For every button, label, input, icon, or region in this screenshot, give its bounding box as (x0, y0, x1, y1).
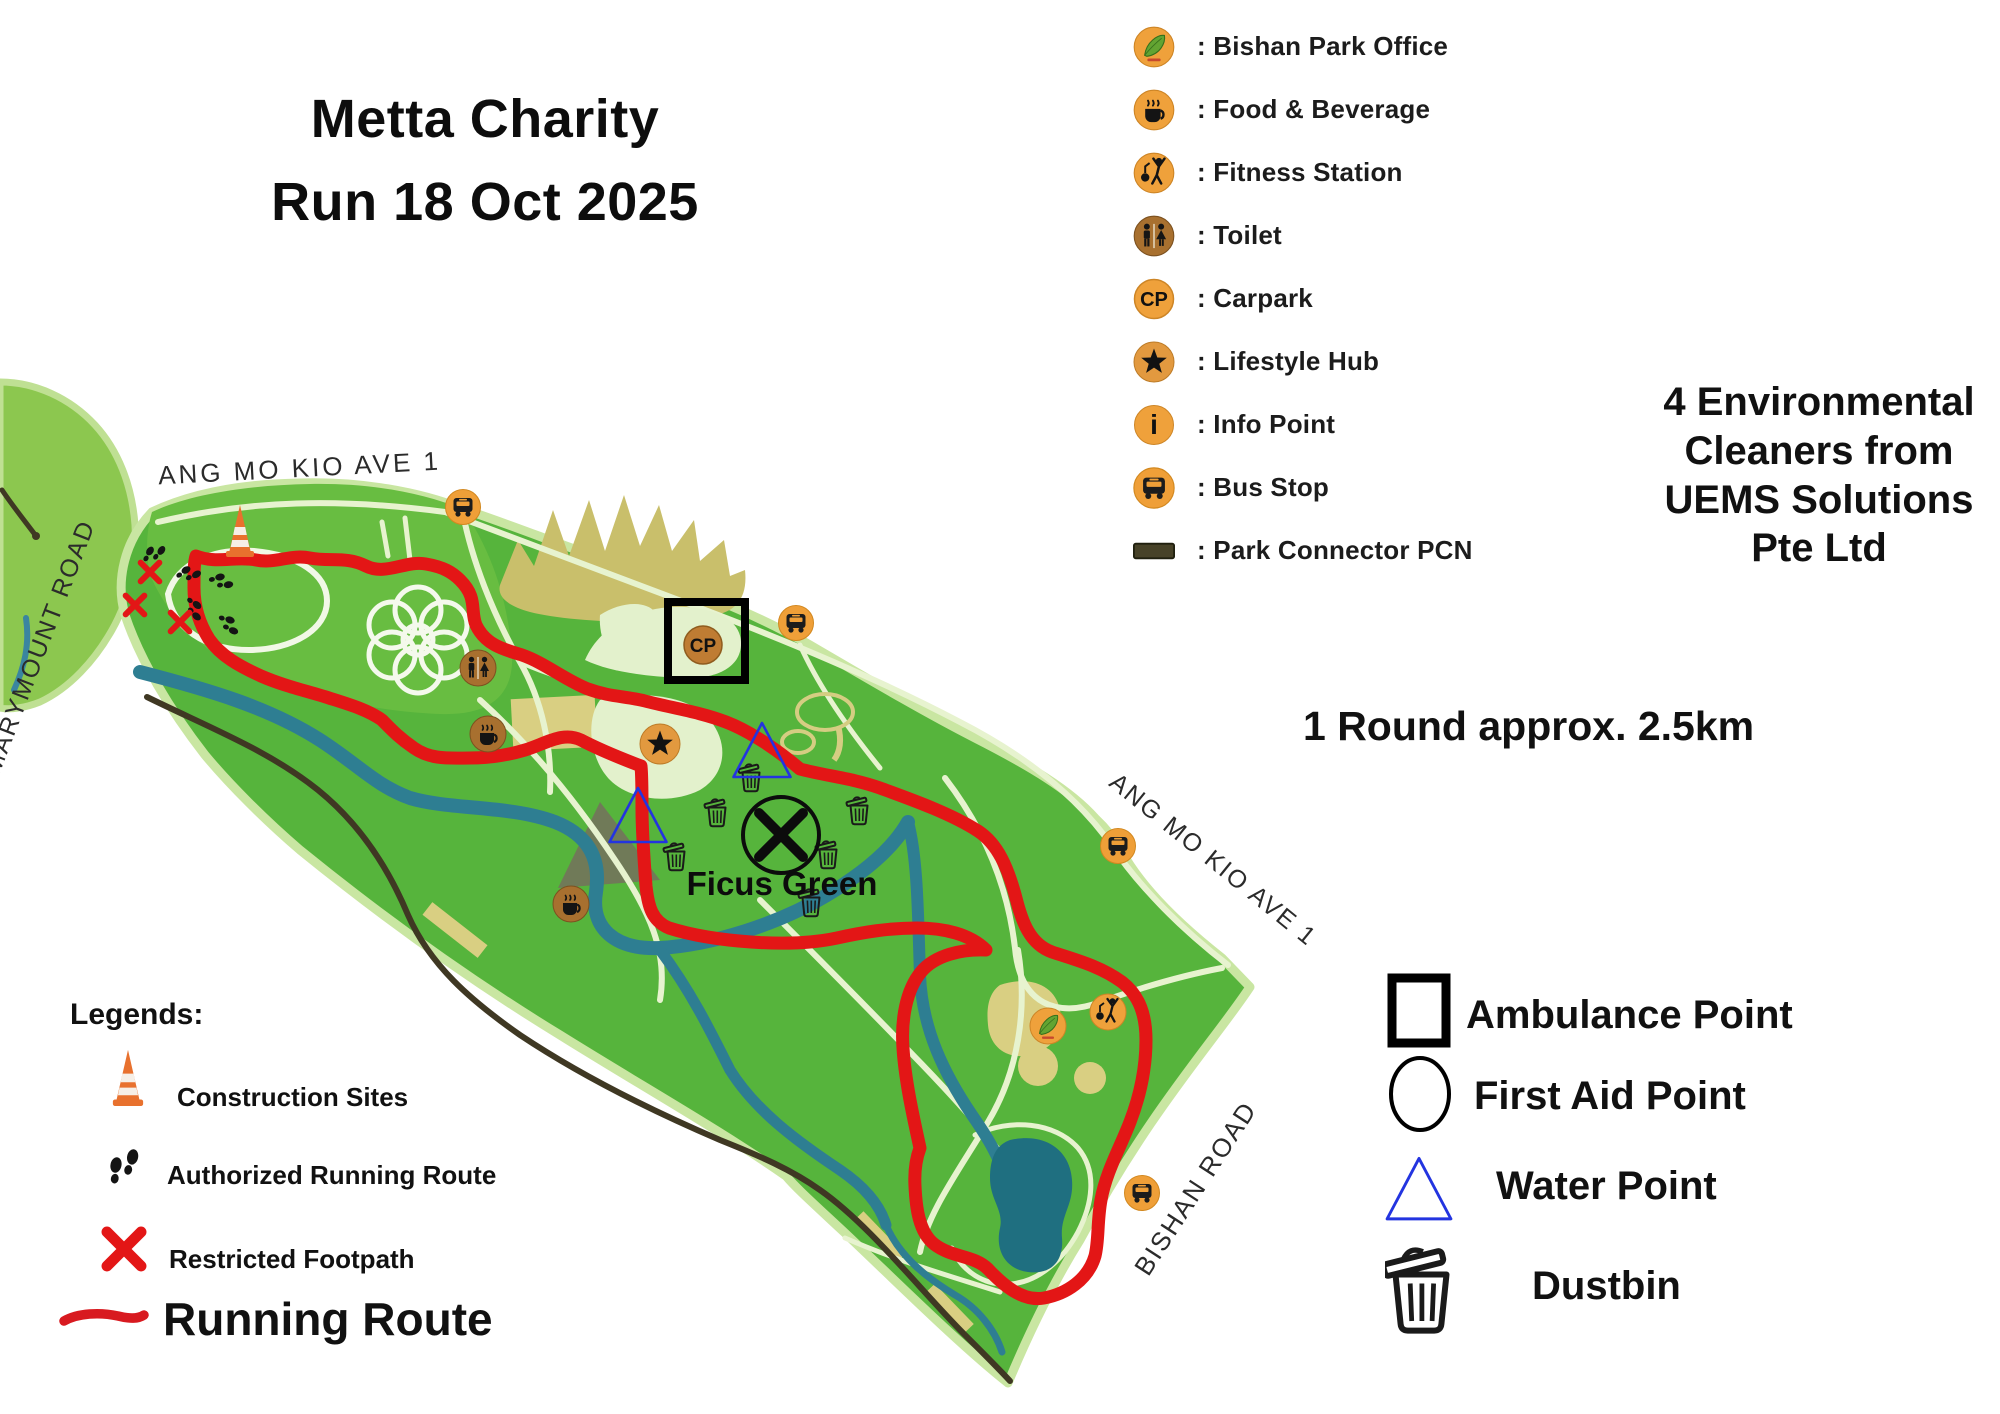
title-line1: Metta Charity (205, 78, 765, 161)
pond (990, 1138, 1072, 1272)
facilities-legend: : Bishan Park Office : Food & Beverage :… (1133, 15, 1603, 582)
legend-row-info: i : Info Point (1133, 393, 1603, 456)
bus-stop-icon (446, 490, 481, 525)
food-beverage-icon (553, 886, 589, 922)
park-office-icon (1133, 26, 1175, 68)
legend-row-fitness: : Fitness Station (1133, 141, 1603, 204)
points-legend-label: Ambulance Point (1466, 993, 1793, 1038)
legend-label: : Toilet (1197, 220, 1282, 251)
legend-row-toilet: : Toilet (1133, 204, 1603, 267)
lifestyle-hub-icon (1133, 341, 1175, 383)
food-beverage-icon (1133, 89, 1175, 131)
square-icon (1387, 973, 1451, 1053)
page-title: Metta Charity Run 18 Oct 2025 (205, 78, 765, 243)
route-line-icon (58, 1302, 150, 1337)
points-legend-label: Water Point (1496, 1164, 1717, 1209)
legend-row-bus: : Bus Stop (1133, 456, 1603, 519)
site-legend-label: Construction Sites (177, 1082, 408, 1113)
cleaners-line: Pte Ltd (1638, 524, 2000, 573)
toilet-icon (460, 650, 496, 686)
fitness-icon (1090, 994, 1126, 1030)
dustbin-icon (1385, 1243, 1457, 1344)
svg-text:i: i (1150, 409, 1158, 440)
cleaners-line: 4 Environmental (1638, 378, 2000, 427)
fitness-icon (1133, 152, 1175, 194)
points-legend-label: Dustbin (1532, 1264, 1681, 1309)
legend-label: : Park Connector PCN (1197, 535, 1473, 566)
points-legend-label: First Aid Point (1474, 1074, 1746, 1119)
bus-stop-icon (1133, 467, 1175, 509)
area-label: Ficus Green (687, 865, 878, 902)
triangle-icon (1385, 1156, 1453, 1229)
legend-label: : Fitness Station (1197, 157, 1403, 188)
toilet-icon (1133, 215, 1175, 257)
site-legend-label: Restricted Footpath (169, 1244, 415, 1275)
bus-stop-icon (779, 606, 814, 641)
carpark-abbr: CP (690, 636, 717, 657)
svg-text:CP: CP (1140, 289, 1168, 311)
construction-cone-icon (98, 1048, 158, 1115)
bus-stop-icon (1125, 1176, 1160, 1211)
park-office-icon (1030, 1008, 1066, 1044)
legend-label: : Bishan Park Office (1197, 31, 1448, 62)
lifestyle-hub-icon (640, 724, 680, 764)
legend-label: : Food & Beverage (1197, 94, 1430, 125)
legend-label: : Bus Stop (1197, 472, 1329, 503)
cleaners-note: 4 Environmental Cleaners from UEMS Solut… (1638, 378, 2000, 573)
legend-row-lifestyle: : Lifestyle Hub (1133, 330, 1603, 393)
legend-label: : Lifestyle Hub (1197, 346, 1379, 377)
park-connector-icon (1133, 530, 1175, 572)
legend-label: : Info Point (1197, 409, 1335, 440)
footprints-icon (94, 1130, 146, 1197)
site-legend-label: Running Route (163, 1292, 493, 1346)
bus-stop-icon (1101, 829, 1136, 864)
legend-row-carpark: CP : Carpark (1133, 267, 1603, 330)
cleaners-line: UEMS Solutions (1638, 476, 2000, 525)
food-beverage-icon (470, 716, 506, 752)
flyer: CP ANG MO KIO AVE 1 MARYMOUNT ROAD ANG M… (0, 0, 2000, 1414)
restricted-cross-icon (99, 1224, 149, 1279)
cleaners-line: Cleaners from (1638, 427, 2000, 476)
legend-row-pcn: : Park Connector PCN (1133, 519, 1603, 582)
legend-row-food: : Food & Beverage (1133, 78, 1603, 141)
carpark-icon: CP (1133, 278, 1175, 320)
info-point-icon: i (1133, 404, 1175, 446)
title-line2: Run 18 Oct 2025 (205, 161, 765, 244)
site-legend-label: Authorized Running Route (167, 1160, 496, 1191)
legend-row-park-office: : Bishan Park Office (1133, 15, 1603, 78)
site-legend-heading: Legends: (70, 998, 203, 1032)
round-distance-note: 1 Round approx. 2.5km (1303, 703, 1754, 750)
legend-label: : Carpark (1197, 283, 1313, 314)
circle-icon (1388, 1055, 1452, 1138)
